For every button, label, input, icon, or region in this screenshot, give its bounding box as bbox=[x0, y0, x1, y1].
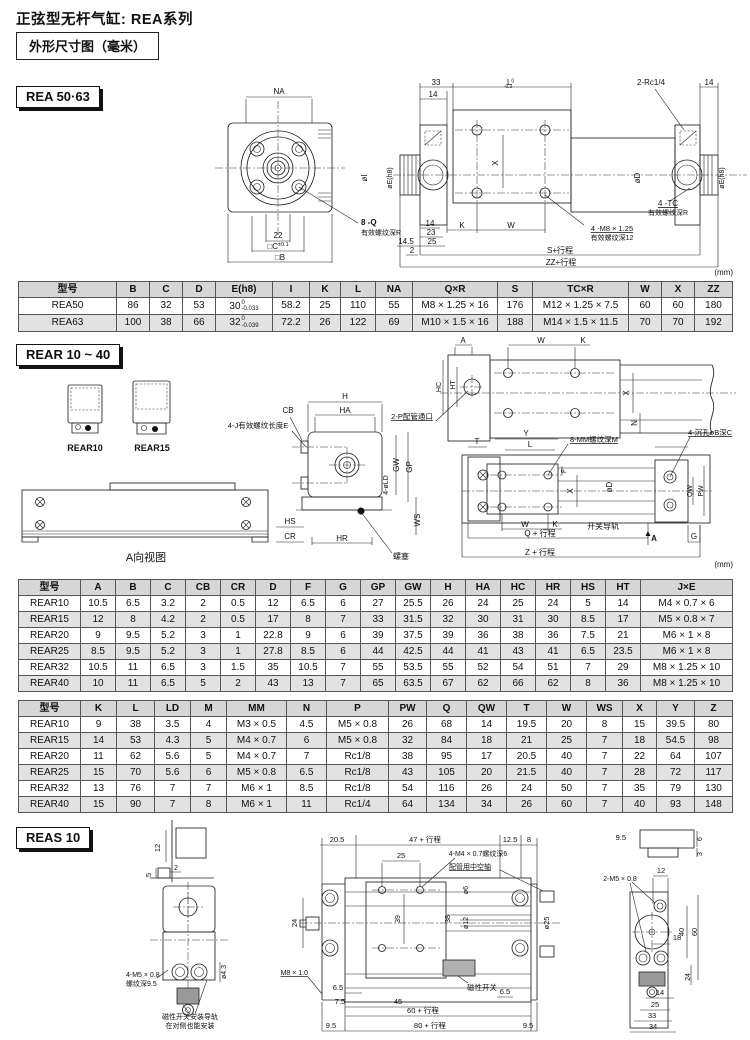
column-header: GW bbox=[396, 580, 431, 596]
table-cell: 7 bbox=[326, 612, 361, 628]
table-cell: REAR40 bbox=[19, 676, 81, 692]
dim-label: W bbox=[521, 520, 529, 529]
dim-label: CB bbox=[282, 406, 293, 415]
rear-side-view bbox=[440, 345, 736, 441]
dim-label: 80 + 行程 bbox=[414, 1020, 446, 1030]
dim-label: 磁性开关安装导轨 bbox=[162, 1012, 218, 1021]
column-header: GP bbox=[361, 580, 396, 596]
table-cell: 26 bbox=[310, 314, 341, 331]
table-cell: 6 bbox=[326, 596, 361, 612]
table-cell: 3.2 bbox=[151, 596, 186, 612]
table-cell: 76 bbox=[117, 781, 155, 797]
table-cell: 26 bbox=[507, 797, 547, 813]
dim-label: T bbox=[475, 437, 480, 446]
table-cell: 84 bbox=[427, 733, 467, 749]
table-cell: 19.5 bbox=[507, 717, 547, 733]
column-header: HT bbox=[606, 580, 641, 596]
table-cell: 29 bbox=[606, 660, 641, 676]
column-header: W bbox=[629, 282, 662, 298]
table-cell: 21.5 bbox=[507, 765, 547, 781]
table-cell: 25 bbox=[501, 596, 536, 612]
dim-label: 38 bbox=[445, 915, 452, 923]
table-cell: 53.5 bbox=[396, 660, 431, 676]
dim-label: G bbox=[691, 532, 697, 541]
table-row: REAR2515705.66M5 × 0.86.5Rc1/8431052021.… bbox=[19, 765, 733, 781]
column-header: CB bbox=[186, 580, 221, 596]
table-row: REAR1010.56.53.220.5126.562725.526242524… bbox=[19, 596, 733, 612]
table-cell: 65 bbox=[361, 676, 396, 692]
dim-label: ø12 bbox=[463, 917, 470, 929]
column-header: N bbox=[287, 701, 327, 717]
table-row: REAR2011625.65M4 × 0.77Rc1/838951720.540… bbox=[19, 749, 733, 765]
dim-label: øD bbox=[605, 481, 614, 492]
column-header: HA bbox=[466, 580, 501, 596]
table-cell: 11 bbox=[116, 676, 151, 692]
table-cell: 43 bbox=[501, 644, 536, 660]
table-cell: 11 bbox=[287, 797, 327, 813]
table-cell: 3.5 bbox=[155, 717, 191, 733]
dim-label: NA bbox=[273, 87, 285, 96]
table-cell: 34 bbox=[467, 797, 507, 813]
dim-label: X bbox=[566, 488, 575, 494]
table-cell: 72 bbox=[657, 765, 695, 781]
table-cell: 80 bbox=[695, 717, 733, 733]
table-cell: REAR10 bbox=[19, 717, 81, 733]
table-cell: 0.5 bbox=[221, 596, 256, 612]
table-cell: 33 bbox=[361, 612, 396, 628]
table-cell: 40 bbox=[547, 765, 587, 781]
dim-label: N bbox=[630, 420, 639, 426]
table-cell: 24 bbox=[536, 596, 571, 612]
table-cell: M12 × 1.25 × 7.5 bbox=[533, 298, 629, 315]
table-cell: 62 bbox=[117, 749, 155, 765]
column-header: F bbox=[291, 580, 326, 596]
column-header: NA bbox=[376, 282, 413, 298]
table-cell: 8.5 bbox=[291, 644, 326, 660]
table-cell: 9 bbox=[291, 628, 326, 644]
dim-label: K bbox=[580, 336, 586, 345]
table-cell: 39.5 bbox=[657, 717, 695, 733]
table-cell: 95 bbox=[427, 749, 467, 765]
table-cell: 23.5 bbox=[606, 644, 641, 660]
table-row: REAR3210.5116.531.53510.575553.555525451… bbox=[19, 660, 733, 676]
table-cell: 13 bbox=[291, 676, 326, 692]
dim-label: X bbox=[622, 390, 631, 396]
table-cell: 4 bbox=[191, 717, 227, 733]
table-cell: 11 bbox=[116, 660, 151, 676]
column-header: ZZ bbox=[695, 282, 733, 298]
table-cell: Rc1/8 bbox=[327, 749, 389, 765]
dim-label: 螺塞 bbox=[393, 551, 409, 561]
table-cell: 35 bbox=[623, 781, 657, 797]
table-cell: 38 bbox=[150, 314, 183, 331]
dim-label: Z + 行程 bbox=[525, 547, 555, 557]
table-cell: 17 bbox=[606, 612, 641, 628]
table-cell: 148 bbox=[695, 797, 733, 813]
table-cell: 15 bbox=[81, 765, 117, 781]
table-cell: 62 bbox=[536, 676, 571, 692]
table-cell: REA63 bbox=[19, 314, 117, 331]
table-cell: 26 bbox=[431, 596, 466, 612]
table-cell: 14 bbox=[81, 733, 117, 749]
table-cell: 15 bbox=[81, 797, 117, 813]
dim-label: 有效螺纹深12 bbox=[591, 233, 634, 242]
table-cell: 62 bbox=[466, 676, 501, 692]
dim-label: 24 bbox=[290, 919, 299, 927]
section-heading-rear: REAR 10 ~ 40 bbox=[16, 344, 120, 366]
dim-label: WS bbox=[413, 514, 422, 527]
table-cell: 41 bbox=[466, 644, 501, 660]
dim-label: HT bbox=[450, 380, 457, 390]
table-cell: 11 bbox=[81, 749, 117, 765]
dim-label: H bbox=[342, 392, 348, 401]
dim-label: 47 + 行程 bbox=[409, 834, 441, 844]
dim-label: 4 -TC bbox=[658, 199, 678, 208]
table-cell: 20.5 bbox=[507, 749, 547, 765]
table-cell: 6.5 bbox=[116, 596, 151, 612]
table-cell: 58.2 bbox=[273, 298, 310, 315]
dim-label: □B bbox=[275, 253, 285, 262]
dimension-diagram-box: 外形尺寸图（毫米） bbox=[16, 32, 159, 60]
table-cell: 63.5 bbox=[396, 676, 431, 692]
column-header: D bbox=[183, 282, 216, 298]
table-cell: 53 bbox=[183, 298, 216, 315]
table-cell: 5 bbox=[571, 596, 606, 612]
dim-label: ø6 bbox=[463, 886, 470, 894]
table-cell: 20 bbox=[467, 765, 507, 781]
dim-label: 60 bbox=[690, 928, 699, 936]
table-cell: 22.8 bbox=[256, 628, 291, 644]
table-cell: 41 bbox=[536, 644, 571, 660]
table-cell: 8 bbox=[571, 676, 606, 692]
table-cell: 37.5 bbox=[396, 628, 431, 644]
table-cell: 44 bbox=[431, 644, 466, 660]
column-header: 型号 bbox=[19, 701, 81, 717]
table-cell: 14 bbox=[606, 596, 641, 612]
table-cell: 90 bbox=[117, 797, 155, 813]
column-header: Q×R bbox=[413, 282, 498, 298]
dim-label: 2 bbox=[174, 865, 178, 872]
table-cell: 30 bbox=[466, 612, 501, 628]
dim-label: 5 bbox=[144, 873, 153, 877]
rear-a-view bbox=[22, 483, 304, 542]
table-cell: 54.5 bbox=[657, 733, 695, 749]
table-cell: 107 bbox=[695, 749, 733, 765]
table-cell: 38 bbox=[117, 717, 155, 733]
table-cell: 20 bbox=[547, 717, 587, 733]
table-cell: 7.5 bbox=[571, 628, 606, 644]
table-cell: 1.5 bbox=[221, 660, 256, 676]
column-header: D bbox=[256, 580, 291, 596]
table-cell: REAR20 bbox=[19, 628, 81, 644]
table-row: REAR151284.220.517873331.5323031308.517M… bbox=[19, 612, 733, 628]
dim-label: (mm) bbox=[714, 268, 733, 277]
table-cell: 51 bbox=[536, 660, 571, 676]
dim-label: ø25 bbox=[542, 917, 551, 930]
dim-label: 4-J有效螺纹长度E bbox=[228, 420, 288, 430]
catalog-page: 正弦型无杆气缸: REA系列 外形尺寸图（毫米） REA 50·63 REAR … bbox=[0, 0, 750, 1040]
dim-label: REAR10 bbox=[67, 443, 103, 453]
table-cell: 9.5 bbox=[116, 628, 151, 644]
table-cell: 86 bbox=[117, 298, 150, 315]
table-cell: 7 bbox=[287, 749, 327, 765]
column-header: K bbox=[310, 282, 341, 298]
dim-label: 12 bbox=[657, 866, 665, 875]
dim-label: 磁性开关 bbox=[467, 982, 497, 992]
table-cell: 12 bbox=[81, 612, 116, 628]
dim-label: HA bbox=[339, 406, 351, 415]
table-cell: 21 bbox=[507, 733, 547, 749]
table-cell: 192 bbox=[695, 314, 733, 331]
dim-label: 60 + 行程 bbox=[407, 1005, 439, 1015]
dim-label: GP bbox=[405, 461, 414, 473]
section-heading-rea: REA 50·63 bbox=[16, 86, 100, 108]
dim-label: 有效螺纹深R bbox=[361, 228, 401, 237]
dim-label: 23 bbox=[427, 228, 436, 237]
table-cell: 5 bbox=[186, 676, 221, 692]
rea-front-view bbox=[215, 97, 358, 263]
table-cell: 8 bbox=[116, 612, 151, 628]
table-cell: 44 bbox=[361, 644, 396, 660]
column-header: X bbox=[623, 701, 657, 717]
table-cell: 7 bbox=[587, 749, 623, 765]
table-cell: 28 bbox=[623, 765, 657, 781]
table-row: REAR109383.54M3 × 0.54.5M5 × 0.826681419… bbox=[19, 717, 733, 733]
table-cell: 53 bbox=[117, 733, 155, 749]
column-header: S bbox=[498, 282, 533, 298]
table-cell: 6.5 bbox=[287, 765, 327, 781]
table-cell: REAR40 bbox=[19, 797, 81, 813]
table-cell: 105 bbox=[427, 765, 467, 781]
column-header: 型号 bbox=[19, 580, 81, 596]
dim-label: 8-MM螺纹深M bbox=[570, 434, 618, 444]
column-header: H bbox=[431, 580, 466, 596]
table-cell: 32 bbox=[150, 298, 183, 315]
table-cell: 60 bbox=[547, 797, 587, 813]
dim-label: 14 bbox=[426, 219, 435, 228]
dim-label: 2-M5 × 0.8 bbox=[603, 876, 637, 883]
table-cell: 35 bbox=[256, 660, 291, 676]
column-header: T bbox=[507, 701, 547, 717]
table-cell: 7 bbox=[326, 660, 361, 676]
dim-label: 2 bbox=[410, 246, 415, 255]
table-cell: 10.5 bbox=[81, 660, 116, 676]
dim-label: S+行程 bbox=[547, 245, 573, 255]
table-cell: 32 bbox=[389, 733, 427, 749]
table-cell: 0.5 bbox=[221, 612, 256, 628]
column-header: K bbox=[81, 701, 117, 717]
table-cell: 100 bbox=[117, 314, 150, 331]
table-cell: 25.5 bbox=[396, 596, 431, 612]
table-cell: 32 bbox=[431, 612, 466, 628]
table-cell: REA50 bbox=[19, 298, 117, 315]
table-cell: 7 bbox=[587, 765, 623, 781]
dim-label: PW bbox=[698, 485, 705, 497]
dim-label: 12.5 bbox=[503, 835, 518, 844]
dim-label: □C±0.1 bbox=[267, 242, 288, 251]
dim-label: 24 bbox=[685, 973, 692, 981]
dim-label: A向视图 bbox=[126, 550, 166, 564]
table-cell: 300-0.033 bbox=[216, 298, 273, 315]
table-cell: M5 × 0.8 × 7 bbox=[641, 612, 733, 628]
dim-label: 4 -M8 × 1.25 bbox=[591, 224, 633, 233]
dim-label: 12 bbox=[153, 844, 162, 852]
table-cell: 36 bbox=[606, 676, 641, 692]
table-cell: 43 bbox=[256, 676, 291, 692]
dim-label: 40 bbox=[677, 928, 686, 936]
column-header: A bbox=[81, 580, 116, 596]
dim-label: 在对侧也能安装 bbox=[166, 1021, 215, 1030]
rear-small-figures bbox=[68, 381, 170, 434]
column-header: I bbox=[273, 282, 310, 298]
table-cell: 6 bbox=[191, 765, 227, 781]
table-cell: 30 bbox=[536, 612, 571, 628]
table-cell: 50 bbox=[547, 781, 587, 797]
table-cell: 1 bbox=[221, 644, 256, 660]
table-cell: 6.5 bbox=[291, 596, 326, 612]
table-cell: 9 bbox=[81, 717, 117, 733]
table-cell: 18 bbox=[623, 733, 657, 749]
table-cell: M4 × 0.7 bbox=[227, 749, 287, 765]
dim-label: K bbox=[459, 221, 465, 230]
table-cell: 5.6 bbox=[155, 765, 191, 781]
table-cell: 1 bbox=[221, 628, 256, 644]
table-cell: 8.5 bbox=[287, 781, 327, 797]
dim-label: M8 × 1.0 bbox=[281, 970, 309, 977]
dim-label: øE(h8) bbox=[387, 167, 394, 188]
table-cell: 5 bbox=[191, 733, 227, 749]
dim-label: HC bbox=[436, 382, 443, 392]
dim-label: 9.5 bbox=[616, 833, 626, 842]
table-cell: 5.2 bbox=[151, 628, 186, 644]
table-cell: 68 bbox=[427, 717, 467, 733]
table-cell: 10.5 bbox=[291, 660, 326, 676]
dim-label: L bbox=[528, 440, 533, 449]
dim-label: 3 bbox=[697, 852, 704, 856]
table-cell: M5 × 0.8 bbox=[327, 717, 389, 733]
column-header: X bbox=[662, 282, 695, 298]
dim-label: 8 bbox=[527, 835, 531, 844]
table-cell: 6 bbox=[326, 628, 361, 644]
rea-dimension-table: 型号BCDE(h8)IKLNAQ×RSTC×RWXZZREA5086325330… bbox=[18, 281, 733, 332]
table-cell: 64 bbox=[657, 749, 695, 765]
table-cell: 98 bbox=[695, 733, 733, 749]
table-cell: 27 bbox=[361, 596, 396, 612]
table-cell: REAR32 bbox=[19, 660, 81, 676]
dim-label: W bbox=[537, 336, 545, 345]
table-cell: 39 bbox=[431, 628, 466, 644]
dim-label: 有效螺纹深R bbox=[648, 208, 688, 217]
table-cell: Rc1/8 bbox=[327, 781, 389, 797]
table-row: REA631003866320-0.03972.22612269M10 × 1.… bbox=[19, 314, 733, 331]
dim-label: REAR15 bbox=[134, 443, 170, 453]
table-cell: 6.5 bbox=[571, 644, 606, 660]
table-cell: 6 bbox=[326, 644, 361, 660]
table-cell: 4.2 bbox=[151, 612, 186, 628]
dim-label: øE(h8) bbox=[719, 167, 726, 188]
table-cell: 12 bbox=[256, 596, 291, 612]
table-cell: 134 bbox=[427, 797, 467, 813]
table-cell: 67 bbox=[431, 676, 466, 692]
dim-label: HR bbox=[336, 534, 348, 543]
table-cell: 7 bbox=[587, 733, 623, 749]
table-row: REAR1514534.35M4 × 0.76M5 × 0.8328418212… bbox=[19, 733, 733, 749]
table-cell: 7 bbox=[587, 797, 623, 813]
table-cell: 25 bbox=[547, 733, 587, 749]
column-header: B bbox=[116, 580, 151, 596]
table-cell: REAR15 bbox=[19, 612, 81, 628]
table-cell: 7 bbox=[326, 676, 361, 692]
rear-dimension-drawing: REAR10REAR15A向视图CB4-J有效螺纹长度EHSCRHHAGWGP4… bbox=[0, 335, 750, 575]
table-cell: 31 bbox=[501, 612, 536, 628]
dim-label: GW bbox=[392, 458, 401, 472]
table-cell: 70 bbox=[662, 314, 695, 331]
dim-label: 39 bbox=[395, 915, 402, 923]
table-cell: 79 bbox=[657, 781, 695, 797]
column-header: E(h8) bbox=[216, 282, 273, 298]
dim-label: Q + 行程 bbox=[524, 528, 555, 538]
table-cell: 3 bbox=[186, 660, 221, 676]
table-cell: 17 bbox=[256, 612, 291, 628]
dim-label: 45 bbox=[394, 997, 402, 1006]
rea-dimension-drawing: NA22□C±0.1□B8 -Q有效螺纹深R3314L0-0.22-Rc1/41… bbox=[0, 75, 750, 280]
dim-label: 7.5 bbox=[335, 997, 345, 1006]
table-row: REAR258.59.55.23127.88.564442.5444143416… bbox=[19, 644, 733, 660]
table-cell: 110 bbox=[341, 298, 376, 315]
dim-label: A bbox=[651, 534, 657, 543]
table-cell: 117 bbox=[695, 765, 733, 781]
table-cell: 180 bbox=[695, 298, 733, 315]
dim-label: 20.5 bbox=[330, 835, 345, 844]
dim-label: 2-P配管通口 bbox=[391, 411, 433, 421]
table-cell: 2 bbox=[221, 676, 256, 692]
dim-label: W bbox=[507, 221, 515, 230]
column-header: TC×R bbox=[533, 282, 629, 298]
table-cell: 7 bbox=[571, 660, 606, 676]
table-cell: M5 × 0.8 bbox=[227, 765, 287, 781]
dim-label: A bbox=[460, 336, 466, 345]
table-cell: 54 bbox=[501, 660, 536, 676]
table-cell: 60 bbox=[629, 298, 662, 315]
table-row: REAR4010116.552431376563.567626662836M8 … bbox=[19, 676, 733, 692]
table-cell: 42.5 bbox=[396, 644, 431, 660]
column-header: B bbox=[117, 282, 150, 298]
table-cell: 17 bbox=[467, 749, 507, 765]
column-header: L bbox=[117, 701, 155, 717]
table-row: REAR40159078M6 × 111Rc1/4641343426607409… bbox=[19, 797, 733, 813]
table-cell: Rc1/8 bbox=[327, 765, 389, 781]
rear-top-view bbox=[462, 437, 714, 557]
table-cell: 8 bbox=[191, 797, 227, 813]
column-header: Y bbox=[657, 701, 695, 717]
dim-label: 2-Rc1/4 bbox=[637, 78, 666, 87]
table-cell: M3 × 0.5 bbox=[227, 717, 287, 733]
table-cell: 188 bbox=[498, 314, 533, 331]
table-cell: 8.5 bbox=[81, 644, 116, 660]
table-cell: M10 × 1.5 × 16 bbox=[413, 314, 498, 331]
column-header: QW bbox=[467, 701, 507, 717]
page-title: 正弦型无杆气缸: REA系列 bbox=[16, 8, 193, 29]
table-cell: M5 × 0.8 bbox=[327, 733, 389, 749]
dim-label: HS bbox=[284, 517, 295, 526]
dim-label: CR bbox=[284, 532, 296, 541]
table-cell: 93 bbox=[657, 797, 695, 813]
table-cell: REAR20 bbox=[19, 749, 81, 765]
table-cell: 22 bbox=[623, 749, 657, 765]
dim-label: 配管用中空轴 bbox=[449, 862, 491, 871]
dim-label: 4-M4 × 0.7螺纹深6 bbox=[449, 849, 508, 858]
table-cell: 60 bbox=[662, 298, 695, 315]
